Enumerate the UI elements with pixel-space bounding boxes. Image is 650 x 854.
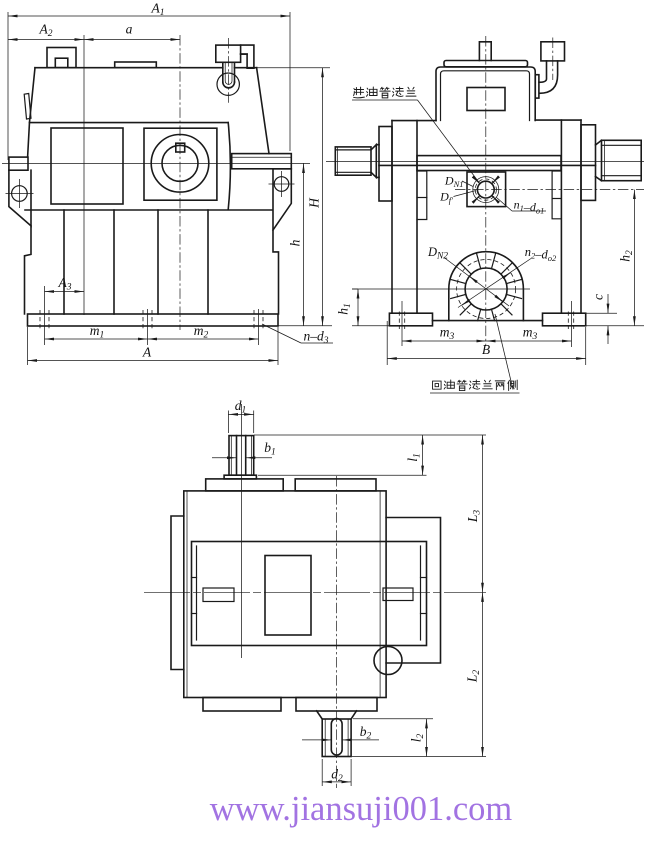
- svg-text:B: B: [482, 342, 490, 357]
- svg-text:A: A: [142, 345, 152, 360]
- svg-text:a: a: [126, 22, 133, 37]
- svg-text:c: c: [591, 294, 606, 300]
- svg-text:H: H: [307, 197, 322, 209]
- svg-text:h: h: [288, 239, 303, 246]
- svg-text:www.jiansuji001.com: www.jiansuji001.com: [210, 790, 513, 828]
